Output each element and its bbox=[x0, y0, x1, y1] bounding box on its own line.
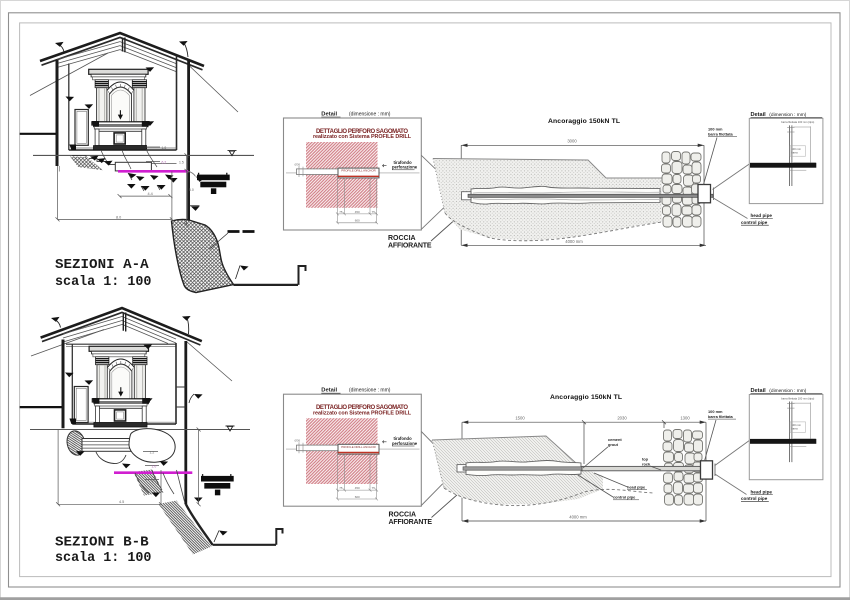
svg-text:ROCCIA: ROCCIA bbox=[389, 512, 417, 519]
svg-text:control pipe: control pipe bbox=[613, 495, 636, 500]
svg-text:head pipe: head pipe bbox=[627, 484, 646, 489]
svg-text:1.2: 1.2 bbox=[150, 450, 155, 454]
svg-text:2030: 2030 bbox=[617, 416, 627, 421]
svg-text:scala 1: 100: scala 1: 100 bbox=[55, 551, 151, 566]
svg-text:1.5: 1.5 bbox=[152, 478, 157, 482]
svg-text:SEZIONI A-A: SEZIONI A-A bbox=[55, 257, 149, 273]
svg-text:4.4: 4.4 bbox=[148, 192, 153, 196]
svg-text:Ancoraggio 150kN TL: Ancoraggio 150kN TL bbox=[548, 118, 620, 125]
svg-text:barra filettata: barra filettata bbox=[708, 131, 733, 136]
svg-text:AFFIORANTE: AFFIORANTE bbox=[388, 242, 432, 249]
svg-text:4.5: 4.5 bbox=[119, 500, 124, 504]
svg-text:Ancoraggio 150kN TL: Ancoraggio 150kN TL bbox=[550, 394, 622, 401]
svg-text:8.0: 8.0 bbox=[116, 215, 121, 219]
svg-text:grout: grout bbox=[608, 442, 619, 447]
svg-text:1.5: 1.5 bbox=[179, 161, 184, 165]
svg-text:1300: 1300 bbox=[680, 416, 690, 421]
svg-text:3000: 3000 bbox=[567, 139, 577, 144]
svg-text:1.0: 1.0 bbox=[152, 464, 157, 468]
svg-text:4000 mm: 4000 mm bbox=[565, 239, 583, 244]
svg-text:AFFIORANTE: AFFIORANTE bbox=[389, 519, 433, 526]
svg-text:rock: rock bbox=[642, 461, 651, 466]
svg-text:ROCCIA: ROCCIA bbox=[388, 235, 416, 242]
svg-text:SEZIONI B-B: SEZIONI B-B bbox=[55, 534, 149, 550]
svg-text:1.8: 1.8 bbox=[162, 146, 167, 150]
svg-text:6.2: 6.2 bbox=[162, 161, 167, 165]
svg-text:4000 mm: 4000 mm bbox=[569, 514, 587, 519]
svg-text:scala 1: 100: scala 1: 100 bbox=[55, 275, 151, 290]
svg-text:5.0: 5.0 bbox=[189, 188, 194, 192]
svg-text:barra filettata: barra filettata bbox=[708, 414, 733, 419]
svg-text:1500: 1500 bbox=[515, 416, 525, 421]
